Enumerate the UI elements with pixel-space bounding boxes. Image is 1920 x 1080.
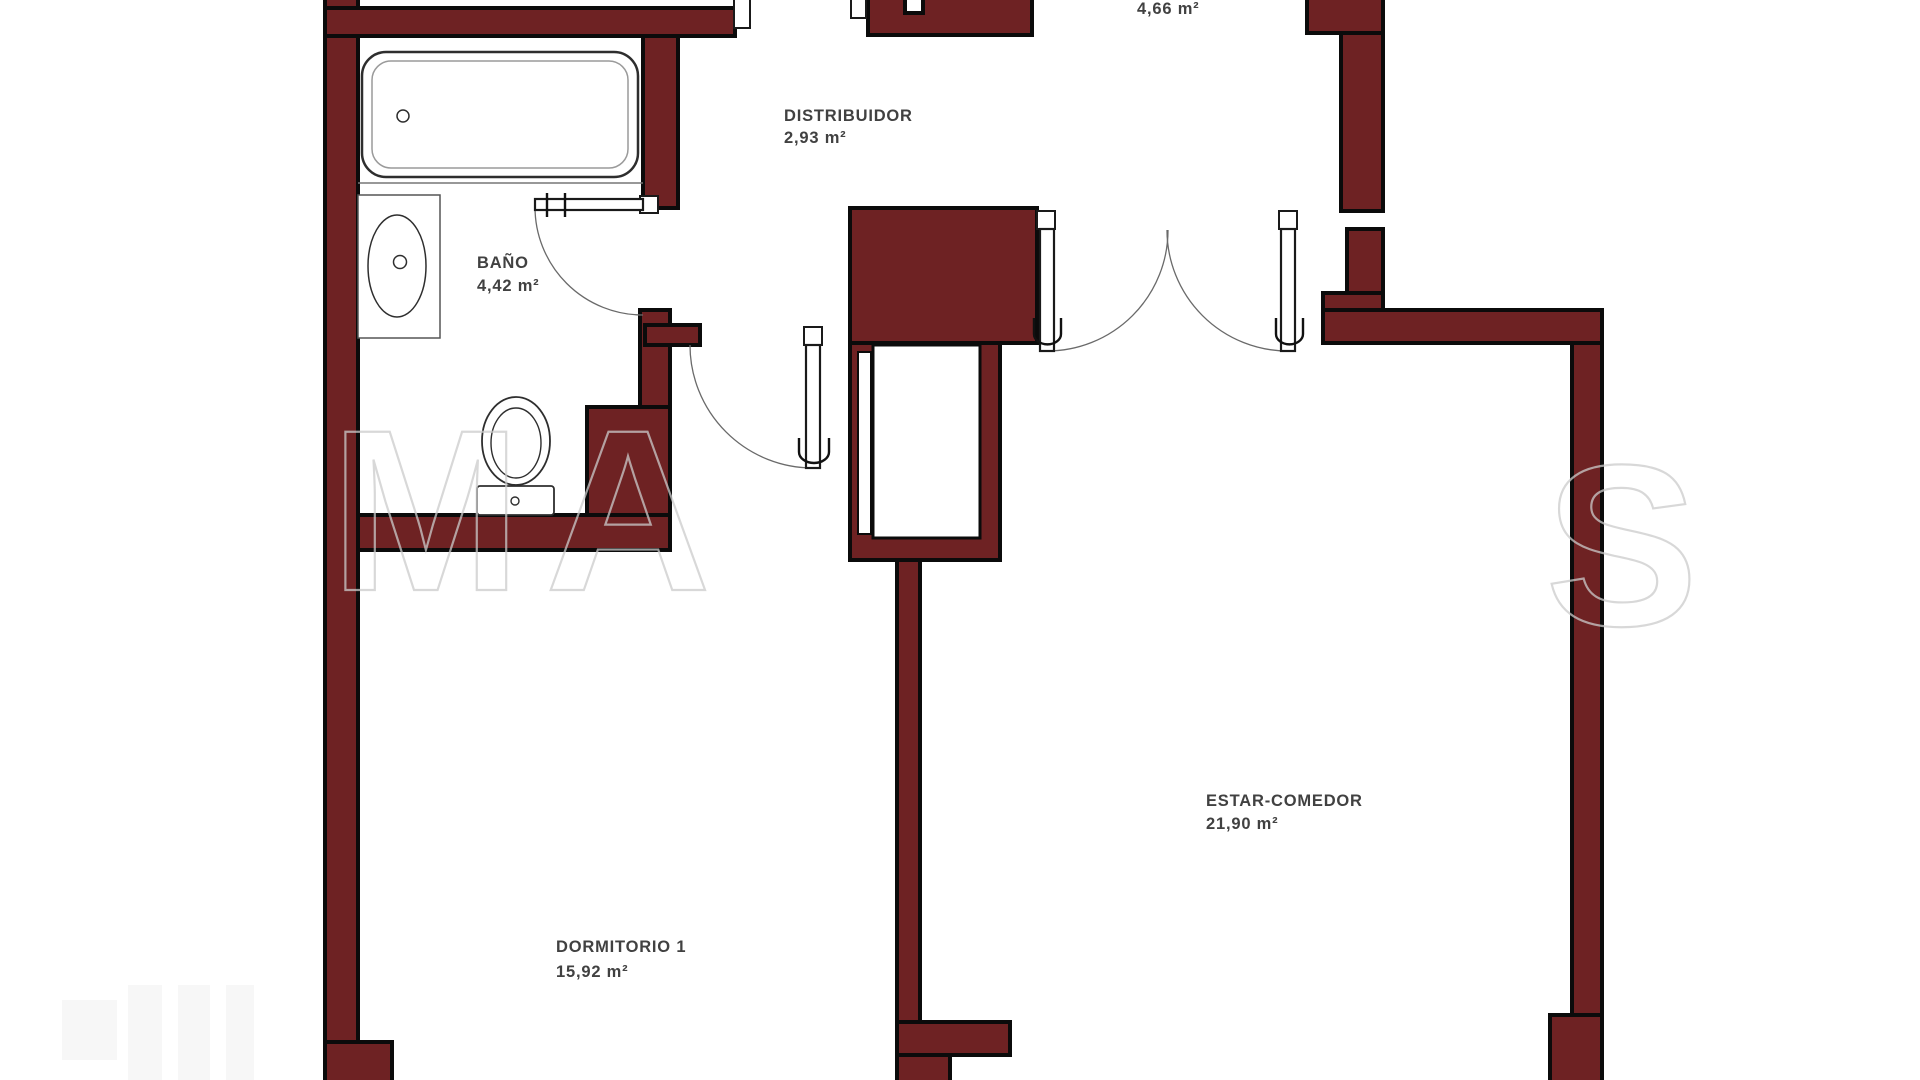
- living-door-frame-left: [1037, 211, 1055, 229]
- living-door-frame-right: [1279, 211, 1297, 229]
- room-name-estar-comedor: ESTAR-COMEDOR: [1206, 792, 1363, 810]
- room-area-bano: 4,42 m²: [477, 277, 539, 295]
- wall-divider-bottom-chunk-2: [897, 1055, 950, 1080]
- wall-distributor-north: [868, 0, 1032, 35]
- wall-right-bottom-chunk: [1550, 1015, 1602, 1080]
- wall-topright-chunk: [1307, 0, 1383, 33]
- door-frame-top-left: [734, 0, 750, 28]
- room-name-distribuidor: DISTRIBUIDOR: [784, 107, 913, 125]
- wall-door-jamb-stub: [645, 325, 700, 345]
- bathtub-drain: [397, 110, 409, 122]
- watermark-letter-m: M: [330, 382, 522, 639]
- sink-drain: [394, 256, 407, 269]
- room-area-dormitorio-1: 15,92 m²: [556, 963, 628, 981]
- room-name-bano: BAÑO: [477, 252, 529, 272]
- living-door-leaf-right: [1281, 229, 1295, 351]
- shaft-interior: [873, 345, 980, 538]
- room-name-dormitorio-1: DORMITORIO 1: [556, 938, 686, 956]
- bedroom-door-leaf: [806, 345, 820, 468]
- floor-plan-canvas: M A S 4,66 m² DISTRIBUIDOR 2,93 m² BAÑO …: [0, 0, 1920, 1080]
- bathroom-door-leaf: [535, 199, 643, 210]
- shaft: [858, 345, 980, 538]
- wall-divider-bottom-chunk: [897, 1022, 1010, 1055]
- watermark-letter-s: S: [1545, 417, 1698, 674]
- room-area-top-room: 4,66 m²: [1137, 0, 1199, 18]
- wall-right-north-upper: [1341, 33, 1383, 211]
- living-door-leaf-left: [1040, 229, 1054, 351]
- shaft-panel: [858, 352, 871, 534]
- wall-living-north: [1323, 310, 1602, 343]
- wall-right-north-lower: [1347, 229, 1383, 293]
- door-frame-top-right: [851, 0, 866, 18]
- room-area-estar-comedor: 21,90 m²: [1206, 815, 1278, 833]
- watermark-letter-a: A: [545, 382, 711, 639]
- floor-plan-page: M A S 4,66 m² DISTRIBUIDOR 2,93 m² BAÑO …: [0, 0, 1920, 1080]
- room-area-distribuidor: 2,93 m²: [784, 129, 846, 147]
- wall-central-block: [850, 208, 1037, 343]
- bedroom-door-frame: [804, 327, 822, 345]
- wall-room-divider: [897, 560, 920, 1022]
- wall-bathroom-east: [643, 36, 678, 208]
- wall-bathroom-north: [325, 8, 735, 36]
- wall-left-bottom-chunk: [325, 1042, 392, 1080]
